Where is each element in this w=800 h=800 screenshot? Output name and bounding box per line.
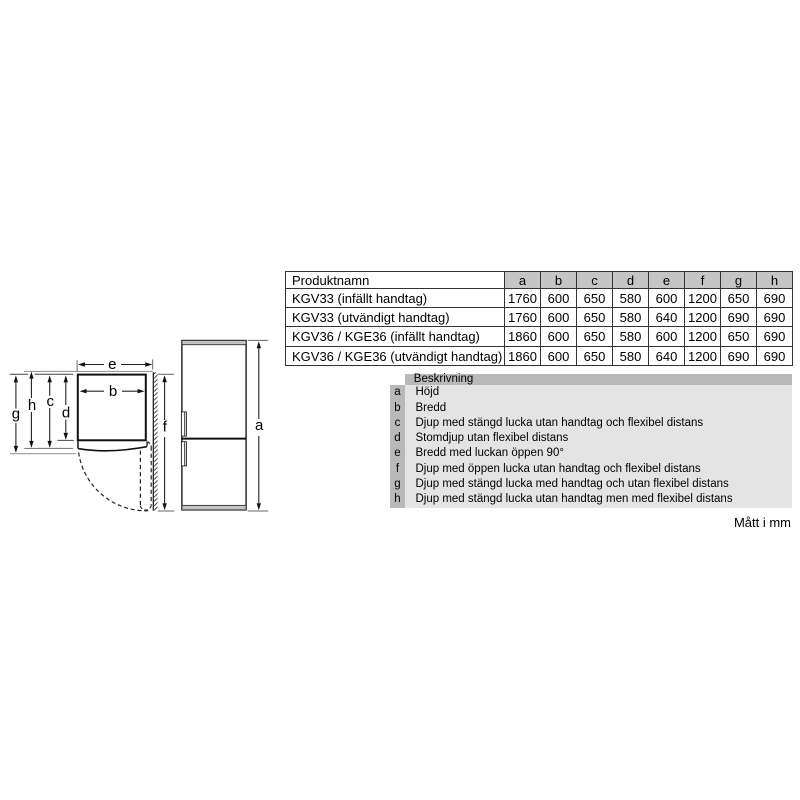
svg-text:f: f	[163, 418, 168, 435]
svg-text:g: g	[12, 406, 20, 423]
svg-text:h: h	[28, 397, 36, 414]
svg-text:d: d	[62, 404, 70, 421]
svg-text:c: c	[46, 393, 54, 410]
svg-text:a: a	[255, 417, 264, 434]
svg-text:b: b	[109, 383, 117, 400]
svg-text:e: e	[108, 356, 116, 373]
